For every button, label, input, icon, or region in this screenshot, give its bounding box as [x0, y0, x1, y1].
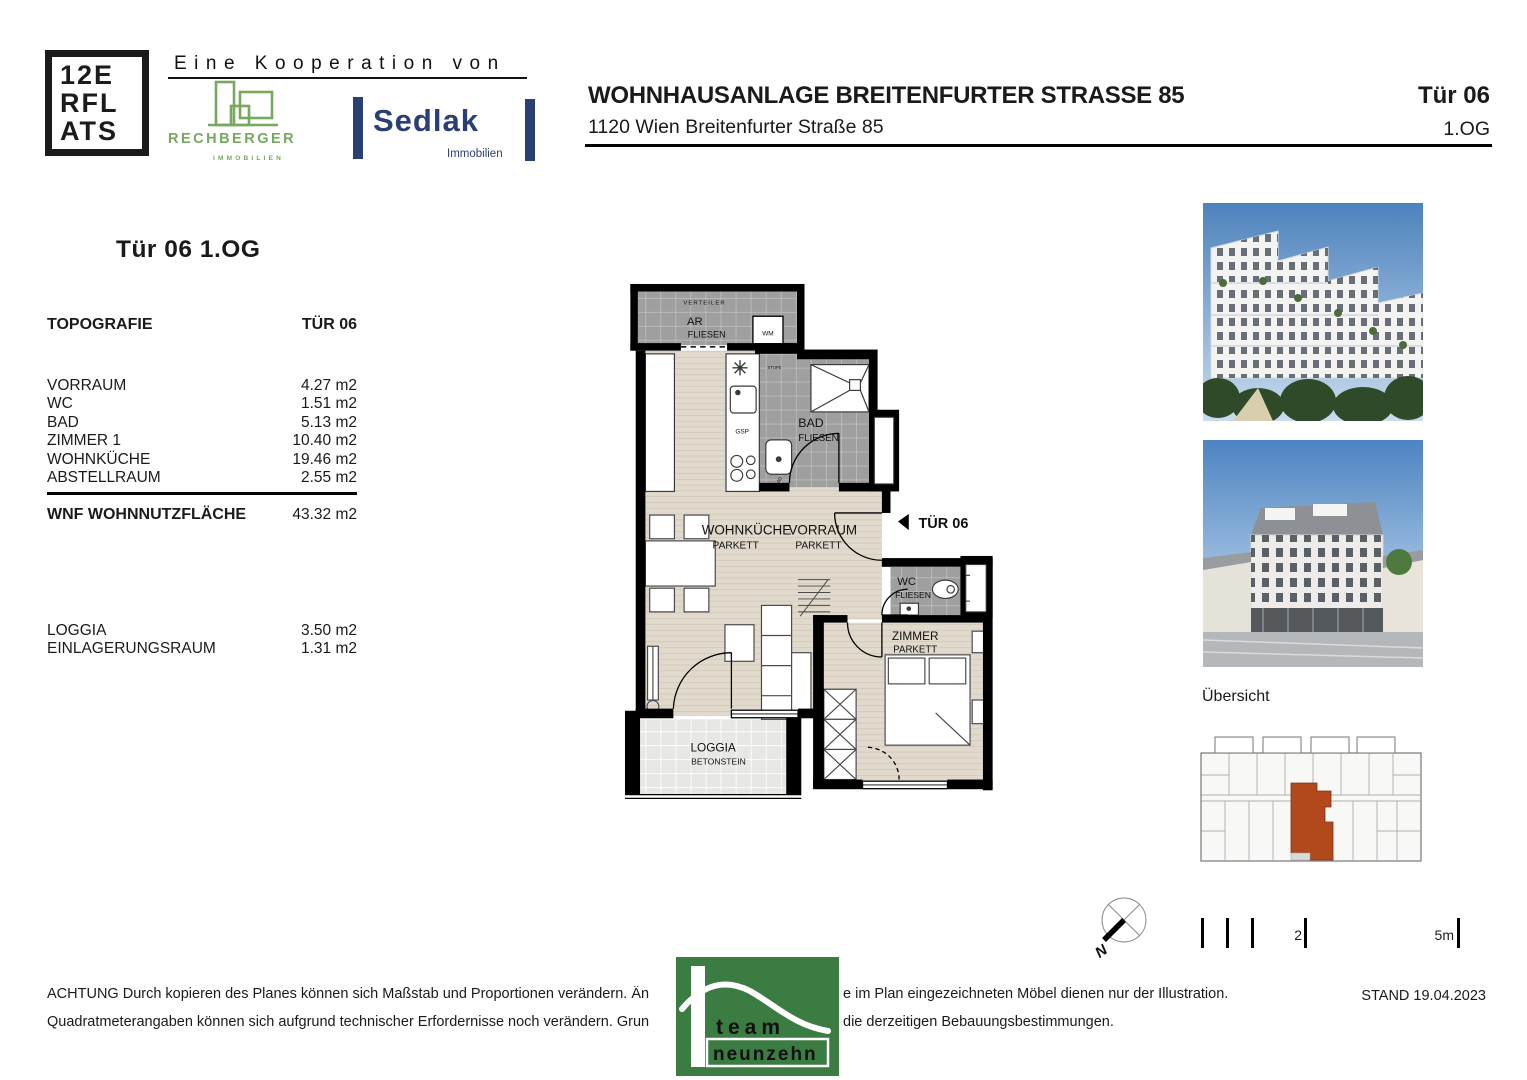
sedlak-right-bar	[525, 99, 535, 161]
room-value: 4.27 m2	[301, 377, 357, 395]
table-row: BAD 5.13 m2	[47, 414, 357, 432]
gsp-label: GSP	[735, 428, 749, 435]
topografie-title: TOPOGRAFIE	[47, 316, 153, 334]
disclaimer-line1-right: e im Plan eingezeichneten Möbel dienen n…	[843, 986, 1228, 1002]
disclaimer-line1-left: ACHTUNG Durch kopieren des Planes können…	[47, 986, 674, 1002]
rechberger-buildings-icon	[206, 78, 280, 128]
total-area-row: WNF WOHNNUTZFLÄCHE 43.32 m2	[47, 506, 357, 524]
room-label: EINLAGERUNGSRAUM	[47, 640, 216, 658]
12erflats-logo: 12E RFL ATS	[45, 50, 149, 156]
page-title: WOHNHAUSANLAGE BREITENFURTER STRASSE 85	[588, 82, 1184, 110]
vorraum-floor-label: PARKETT	[795, 540, 841, 551]
room-value: 2.55 m2	[301, 469, 357, 487]
table-row: ZIMMER 1 10.40 m2	[47, 432, 357, 450]
bed	[885, 655, 970, 745]
12erflats-line: RFL	[60, 89, 142, 117]
wm-label: WM	[762, 331, 773, 338]
table-row: WC 1.51 m2	[47, 395, 357, 413]
room-label: VORRAUM	[47, 377, 126, 395]
north-letter: N	[1093, 941, 1112, 962]
table-row: ABSTELLRAUM 2.55 m2	[47, 469, 357, 487]
team-text: team	[716, 1016, 785, 1039]
table-row: WOHNKÜCHE 19.46 m2	[47, 451, 357, 469]
building-rendering-street	[1203, 440, 1423, 667]
entrance-arrow-icon	[898, 514, 909, 530]
uebersicht-label: Übersicht	[1202, 688, 1270, 706]
room-value: 1.31 m2	[301, 640, 357, 658]
floorplan-document-page: 12E RFL ATS Eine Kooperation von RECHBER…	[0, 0, 1527, 1080]
wardrobe	[824, 689, 856, 779]
room-value: 1.51 m2	[301, 395, 357, 413]
ar-label: AR	[687, 316, 703, 328]
bad-floor-label: FLIESEN	[798, 433, 838, 444]
room-label: BAD	[47, 414, 79, 432]
shaft	[966, 565, 986, 612]
sedlak-logo-text: Sedlak	[373, 103, 479, 139]
room-area-table: VORRAUM 4.27 m2 WC 1.51 m2 BAD 5.13 m2 Z…	[47, 377, 357, 487]
scale-label-2: 2	[1286, 927, 1302, 943]
building-rendering-terraced	[1203, 203, 1423, 421]
site-plan-overview	[1197, 731, 1425, 867]
header-rule	[585, 144, 1492, 147]
wc-label: WC	[897, 576, 916, 588]
kooperation-label: Eine Kooperation von	[174, 53, 506, 75]
north-compass: N	[1093, 890, 1157, 966]
room-label: WC	[47, 395, 73, 413]
loggia-label: LOGGIA	[690, 741, 735, 755]
bad-label: BAD	[798, 416, 823, 430]
sedlak-immobilien-label: Immobilien	[447, 148, 503, 160]
room-label: ZIMMER 1	[47, 432, 121, 450]
header-floor-label: 1.OG	[1290, 118, 1490, 141]
header-door-label: Tür 06	[1290, 82, 1490, 110]
rechberger-immobilien-label: IMMOBILIEN	[213, 155, 284, 162]
zimmer-floor-label: PARKETT	[893, 645, 937, 656]
unit-heading: Tür 06 1.OG	[116, 236, 260, 264]
disclaimer-line2-left: Quadratmeterangaben können sich aufgrund…	[47, 1014, 674, 1030]
topografie-header-row: TOPOGRAFIE TÜR 06	[47, 316, 357, 334]
scale-tick	[1201, 918, 1204, 948]
team-neunzehn-logo: team neunzehn	[676, 957, 839, 1076]
rechberger-logo-text: RECHBERGER	[168, 131, 296, 147]
room-value: 19.46 m2	[292, 451, 357, 469]
stand-date: STAND 19.04.2023	[1343, 988, 1486, 1004]
plan-door-label: TÜR 06	[918, 515, 968, 532]
12erflats-line: ATS	[60, 117, 142, 145]
room-value: 5.13 m2	[301, 414, 357, 432]
total-value: 43.32 m2	[292, 506, 357, 524]
table-divider	[47, 492, 357, 495]
verteiler-label: VERTEILER	[683, 300, 725, 306]
neunzehn-text: neunzehn	[713, 1044, 818, 1065]
wohnkueche-floor-label: PARKETT	[713, 540, 759, 551]
sedlak-left-bar	[353, 97, 363, 159]
table-row: LOGGIA 3.50 m2	[47, 622, 357, 640]
disclaimer-line2-right: die derzeitigen Bebauungsbestimmungen.	[843, 1014, 1114, 1030]
scale-tick	[1251, 918, 1254, 948]
room-label: LOGGIA	[47, 622, 106, 640]
unit-loggia	[1291, 853, 1310, 860]
table-row: VORRAUM 4.27 m2	[47, 377, 357, 395]
scale-tick	[1304, 918, 1307, 948]
room-label: WOHNKÜCHE	[47, 451, 150, 469]
12erflats-line: 12E	[60, 61, 142, 89]
wc-floor-label: FLIESEN	[895, 590, 931, 600]
ar-floor-label: FLIESEN	[688, 330, 726, 340]
total-label: WNF WOHNNUTZFLÄCHE	[47, 506, 246, 524]
storage-niche	[874, 417, 893, 484]
room-label: ABSTELLRAUM	[47, 469, 161, 487]
loggia-floor-label: BETONSTEIN	[691, 757, 746, 767]
table-row: EINLAGERUNGSRAUM 1.31 m2	[47, 640, 357, 658]
room-value: 3.50 m2	[301, 622, 357, 640]
wohnkueche-label: WOHNKÜCHE	[702, 522, 792, 537]
vorraum-label: VORRAUM	[788, 522, 857, 537]
zimmer-label: ZIMMER	[892, 629, 939, 643]
cooktop-icon	[732, 360, 747, 375]
topografie-col-label: TÜR 06	[302, 316, 357, 334]
scale-tick	[1226, 918, 1229, 948]
scale-tick	[1457, 918, 1460, 948]
apartment-floorplan: TÜR 06 VERTEILER AR FLIESEN WM STUFE GSP…	[600, 270, 1052, 872]
stufe-label: STUFE	[767, 365, 781, 370]
room-value: 10.40 m2	[292, 432, 357, 450]
page-subtitle: 1120 Wien Breitenfurter Straße 85	[588, 116, 884, 139]
scale-label-5m: 5m	[1428, 927, 1454, 943]
extra-area-table: LOGGIA 3.50 m2 EINLAGERUNGSRAUM 1.31 m2	[47, 622, 357, 659]
